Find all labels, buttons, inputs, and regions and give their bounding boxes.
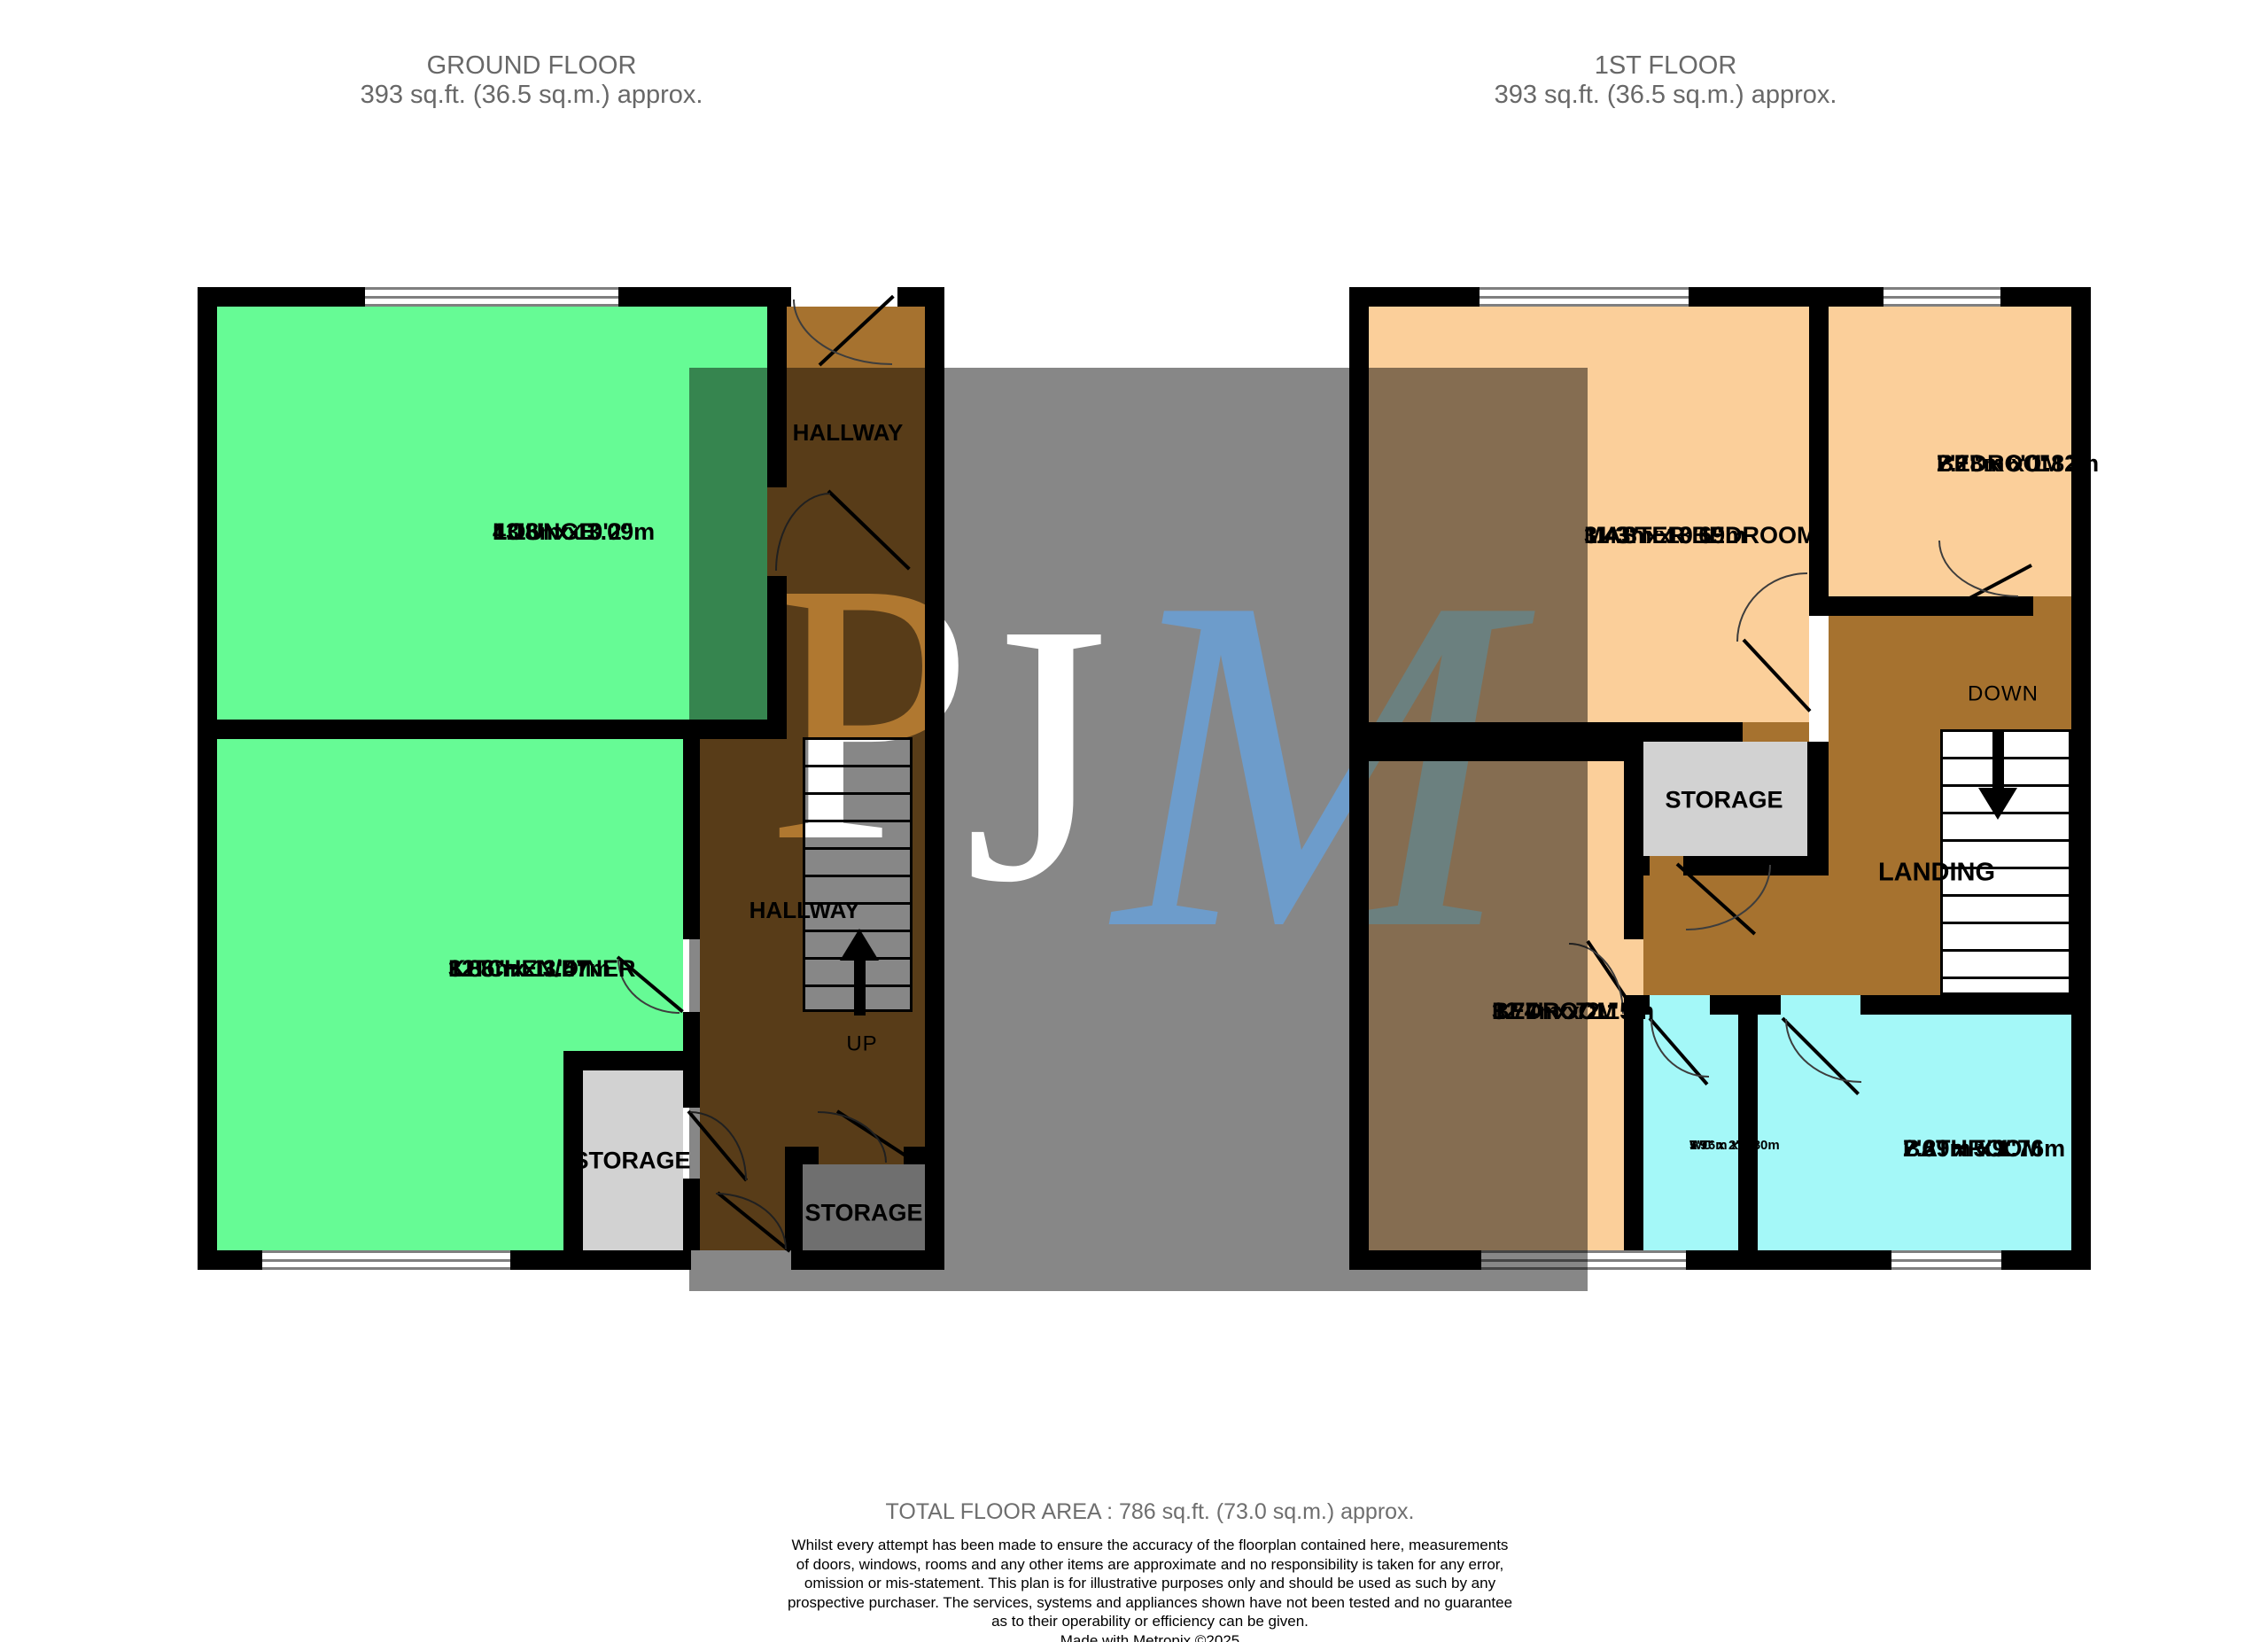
first-wall-right	[2071, 287, 2091, 1270]
ground-floor-title-area: 393 sq.ft. (36.5 sq.m.) approx.	[221, 81, 842, 110]
down-arrow-icon	[1978, 788, 2017, 820]
landing-label: LANDING	[1878, 858, 1995, 887]
bathroom-door-opening	[1781, 995, 1860, 1015]
disclaimer-line-1: Whilst every attempt has been made to en…	[574, 1536, 1726, 1555]
watermark-letter-j: J	[964, 567, 1108, 939]
first-floor-title-area: 393 sq.ft. (36.5 sq.m.) approx.	[1355, 81, 1976, 110]
watermark-letter-p: P	[766, 526, 974, 899]
kitchen-metric: 3.86m x 3.47m	[448, 955, 610, 983]
window-bedroom3-top	[1884, 287, 2000, 307]
wc-door-opening	[1650, 995, 1710, 1015]
disclaimer: Whilst every attempt has been made to en…	[574, 1536, 1726, 1642]
disclaimer-line-3: omission or mis-statement. This plan is …	[574, 1574, 1726, 1593]
floorplan-canvas: GROUND FLOOR 393 sq.ft. (36.5 sq.m.) app…	[0, 0, 2268, 1642]
window-bathroom-bottom	[1891, 1250, 2001, 1270]
lounge-metric: 4.16m x 3.09m	[493, 518, 655, 546]
bathroom-metric: 2.29m x 1.76m	[1903, 1135, 2065, 1163]
watermark-letter-m: M	[1115, 524, 1513, 1002]
first-floor-title: 1ST FLOOR 393 sq.ft. (36.5 sq.m.) approx…	[1355, 51, 1976, 111]
window-kitchen-bottom	[262, 1250, 510, 1270]
disclaimer-line-4: prospective purchaser. The services, sys…	[574, 1593, 1726, 1613]
storage-first-label: STORAGE	[1665, 787, 1783, 814]
wc-metric: 1.76m x 0.80m	[1689, 1138, 1780, 1153]
window-master-top	[1480, 287, 1689, 307]
ground-floor-title: GROUND FLOOR 393 sq.ft. (36.5 sq.m.) app…	[221, 51, 842, 111]
total-floor-area: TOTAL FLOOR AREA : 786 sq.ft. (73.0 sq.m…	[574, 1499, 1726, 1525]
storage-left-label: STORAGE	[572, 1148, 690, 1175]
down-arrow-stem	[1992, 731, 2004, 788]
disclaimer-line-2: of doors, windows, rooms and any other i…	[574, 1555, 1726, 1575]
lounge-room	[217, 307, 767, 720]
wall-master-bedroom3	[1809, 307, 1829, 616]
first-floor-title-name: 1ST FLOOR	[1355, 51, 1976, 81]
stairs-down-label: DOWN	[1968, 681, 2039, 705]
bedroom3-metric: 2.18m x 1.82m	[1937, 450, 2099, 478]
master-door-opening	[1743, 722, 1809, 742]
wall-bedroom3-landing	[1829, 596, 2033, 616]
master-metric: 3.43m x 3.19m	[1584, 522, 1746, 549]
window-lounge-top	[365, 287, 618, 307]
footer: TOTAL FLOOR AREA : 786 sq.ft. (73.0 sq.m…	[574, 1499, 1726, 1642]
metropix-credit: Made with Metropix ©2025	[574, 1631, 1726, 1642]
ground-floor-title-name: GROUND FLOOR	[221, 51, 842, 81]
wall-wc-bathroom	[1738, 1015, 1758, 1250]
ground-wall-left	[198, 287, 217, 1270]
disclaimer-line-5: as to their operability or efficiency ca…	[574, 1612, 1726, 1631]
